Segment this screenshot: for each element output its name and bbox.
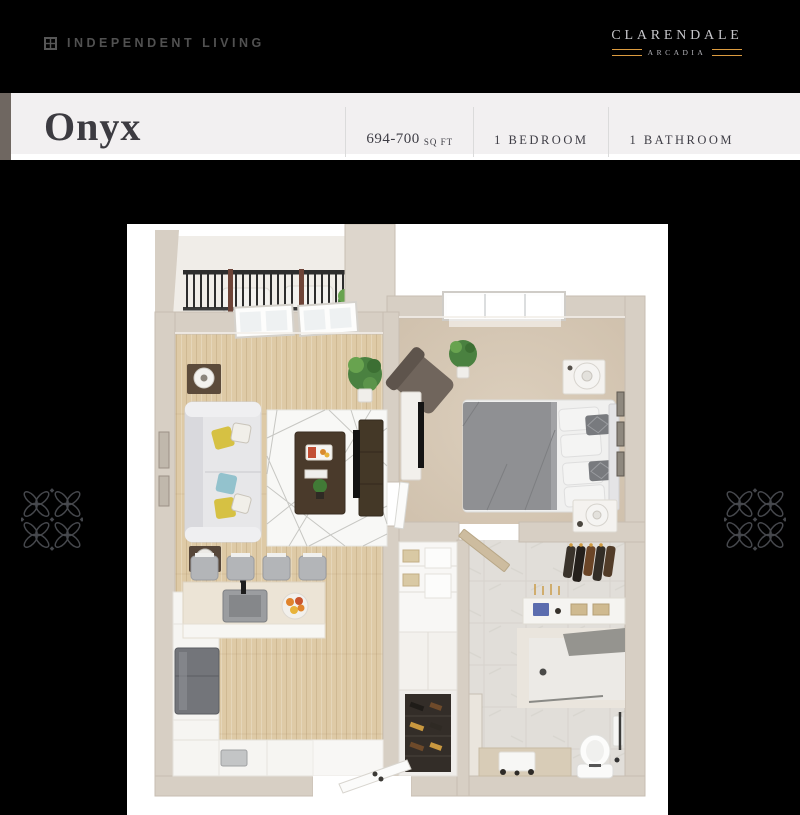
fruit-bowl <box>282 593 308 619</box>
floor-plan-page: INDEPENDENT LIVING CLARENDALE ARCADIA On… <box>0 0 800 815</box>
bedroom-window <box>443 292 565 327</box>
bedroom-tv-screen <box>418 402 424 468</box>
spec-bedroom: 1 BEDROOM <box>473 107 608 157</box>
quatrefoil-pattern-right <box>724 486 786 553</box>
wall-bedroom-bottom-a <box>399 522 459 542</box>
bathroom-label: 1 BATHROOM <box>629 133 734 148</box>
nightstand-top <box>563 360 605 394</box>
living-window <box>298 302 358 336</box>
sqft-value: 694-700 <box>366 131 420 148</box>
basket <box>571 604 587 615</box>
logo-sub-row: ARCADIA <box>602 48 752 57</box>
top-header: INDEPENDENT LIVING CLARENDALE ARCADIA <box>0 0 800 93</box>
bedroom-label: 1 BEDROOM <box>494 133 588 148</box>
bathroom-vanity <box>479 748 571 776</box>
pillow-pattern <box>231 423 252 444</box>
folded-towels <box>533 603 549 616</box>
logo-sub: ARCADIA <box>648 48 707 57</box>
sofa <box>185 402 261 542</box>
pillow <box>560 433 601 458</box>
logo-gold-lines-left <box>612 49 642 56</box>
wall-closet-bathroom <box>457 540 469 796</box>
coffee-table <box>295 432 345 514</box>
sqft-unit: SQ FT <box>424 137 453 148</box>
wall-right <box>625 296 645 796</box>
kitchen-peninsula <box>183 578 325 638</box>
table-plant <box>313 479 327 493</box>
bedroom-wall-art <box>617 392 624 476</box>
floor-plan-image[interactable] <box>127 224 668 815</box>
floor-plan-svg <box>127 224 668 815</box>
cooktop <box>221 750 247 766</box>
sink <box>499 752 535 771</box>
floorplan-grid-icon <box>44 37 57 50</box>
nightstand-bottom <box>573 500 617 532</box>
band-accent-strip <box>0 93 11 160</box>
pillow-pattern <box>231 493 252 514</box>
spec-bathroom: 1 BATHROOM <box>608 107 754 157</box>
spec-list: 694-700 SQ FT 1 BEDROOM 1 BATHROOM <box>345 107 754 157</box>
title-band: Onyx 694-700 SQ FT 1 BEDROOM 1 BATHROOM <box>0 93 800 160</box>
quatrefoil-pattern-left <box>21 486 83 553</box>
linen-shelving <box>399 542 457 632</box>
main-area <box>0 160 800 815</box>
side-table-lamp <box>187 364 221 394</box>
bedroom-dresser-tv <box>401 392 424 480</box>
category-label: INDEPENDENT LIVING <box>67 36 265 50</box>
wall-hall-closet <box>383 526 399 796</box>
basket <box>403 550 419 562</box>
logo-name: CLARENDALE <box>602 28 752 44</box>
page-title: Onyx <box>44 101 141 147</box>
pillow-blue <box>215 472 238 495</box>
entry-landing <box>313 740 383 776</box>
category-row: INDEPENDENT LIVING <box>44 36 265 50</box>
wall-art <box>159 476 169 506</box>
duvet <box>463 402 555 510</box>
shower-drain <box>540 669 547 676</box>
spec-sqft: 694-700 SQ FT <box>345 107 473 157</box>
wall-bottom-right <box>411 776 645 796</box>
refrigerator <box>175 648 219 714</box>
bed <box>463 400 619 512</box>
shower <box>517 628 625 708</box>
logo-gold-lines-right <box>712 49 742 56</box>
tv-screen <box>353 430 360 498</box>
laundry-storage <box>399 542 457 776</box>
toilet <box>577 735 613 778</box>
wall-art <box>159 432 169 468</box>
clarendale-logo[interactable]: CLARENDALE ARCADIA <box>602 28 752 57</box>
basket <box>593 604 609 615</box>
wall-left <box>155 312 175 796</box>
basket <box>403 574 419 586</box>
wall-bottom-left <box>155 776 313 796</box>
